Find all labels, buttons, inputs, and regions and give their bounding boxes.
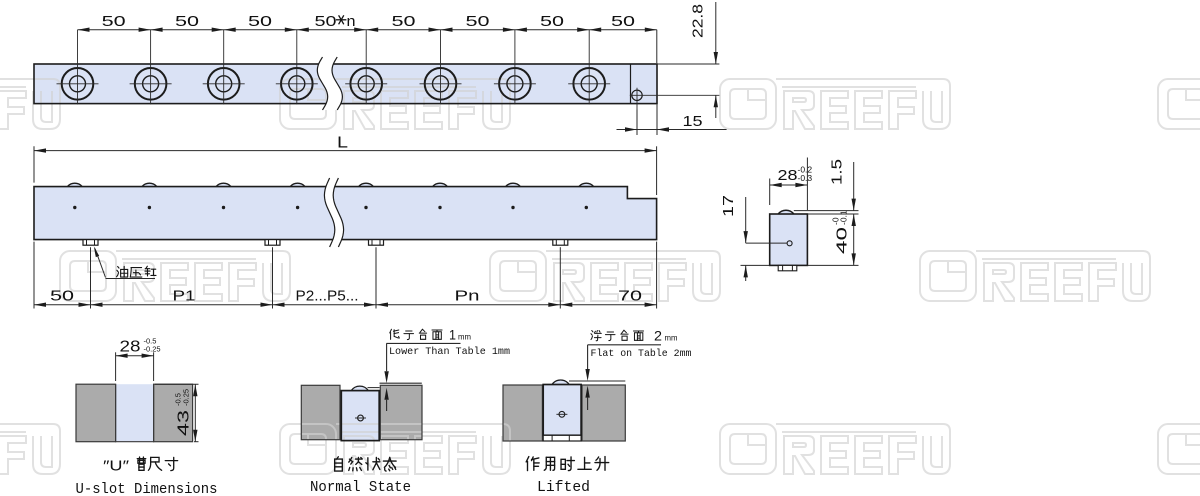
svg-text:Lower Than Table 1mm: Lower Than Table 1mm — [389, 346, 510, 358]
svg-text:1.5: 1.5 — [829, 159, 846, 185]
svg-text:50: 50 — [611, 13, 635, 30]
svg-text:-0.1: -0.1 — [839, 210, 849, 225]
svg-text:Lifted: Lifted — [537, 480, 590, 496]
svg-text:50: 50 — [315, 13, 337, 30]
svg-text:P2...P5...: P2...P5... — [296, 288, 359, 305]
svg-text:Pn: Pn — [455, 288, 480, 305]
svg-text:n: n — [347, 13, 356, 30]
svg-text:50: 50 — [540, 13, 564, 30]
svg-text:Normal State: Normal State — [310, 480, 411, 496]
svg-text:28: 28 — [778, 167, 798, 184]
svg-text:mm: mm — [665, 334, 678, 343]
svg-text:P1: P1 — [173, 288, 196, 305]
svg-text:17: 17 — [720, 195, 737, 217]
svg-text:50: 50 — [466, 13, 490, 30]
svg-text:2: 2 — [654, 328, 662, 344]
svg-text:50: 50 — [175, 13, 199, 30]
svg-text:″U″: ″U″ — [103, 458, 130, 475]
svg-text:U-slot Dimensions: U-slot Dimensions — [76, 482, 218, 496]
svg-text:1: 1 — [449, 327, 456, 343]
svg-text:70: 70 — [618, 288, 642, 305]
svg-text:-0.25: -0.25 — [144, 345, 161, 354]
svg-text:L: L — [337, 135, 348, 152]
svg-text:50: 50 — [102, 13, 126, 30]
svg-text:-0.25: -0.25 — [182, 389, 191, 406]
svg-text:15: 15 — [683, 113, 703, 130]
svg-text:Flat on Table 2mm: Flat on Table 2mm — [591, 348, 692, 360]
svg-text:mm: mm — [458, 333, 471, 342]
svg-text:50: 50 — [392, 13, 416, 30]
svg-text:-0.3: -0.3 — [798, 173, 813, 183]
svg-text:43: 43 — [176, 410, 193, 436]
svg-text:40: 40 — [834, 227, 851, 254]
svg-text:28: 28 — [120, 339, 141, 356]
svg-text:50: 50 — [248, 13, 272, 30]
svg-text:22.8: 22.8 — [690, 4, 707, 38]
svg-text:50: 50 — [50, 288, 74, 305]
